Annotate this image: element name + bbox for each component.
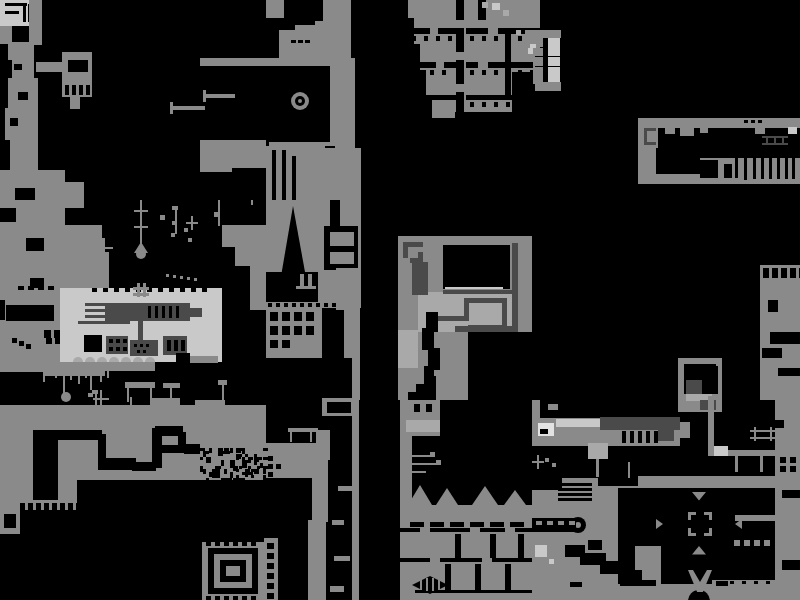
game-map-canvas[interactable] bbox=[0, 0, 800, 600]
map-viewport bbox=[0, 0, 800, 600]
